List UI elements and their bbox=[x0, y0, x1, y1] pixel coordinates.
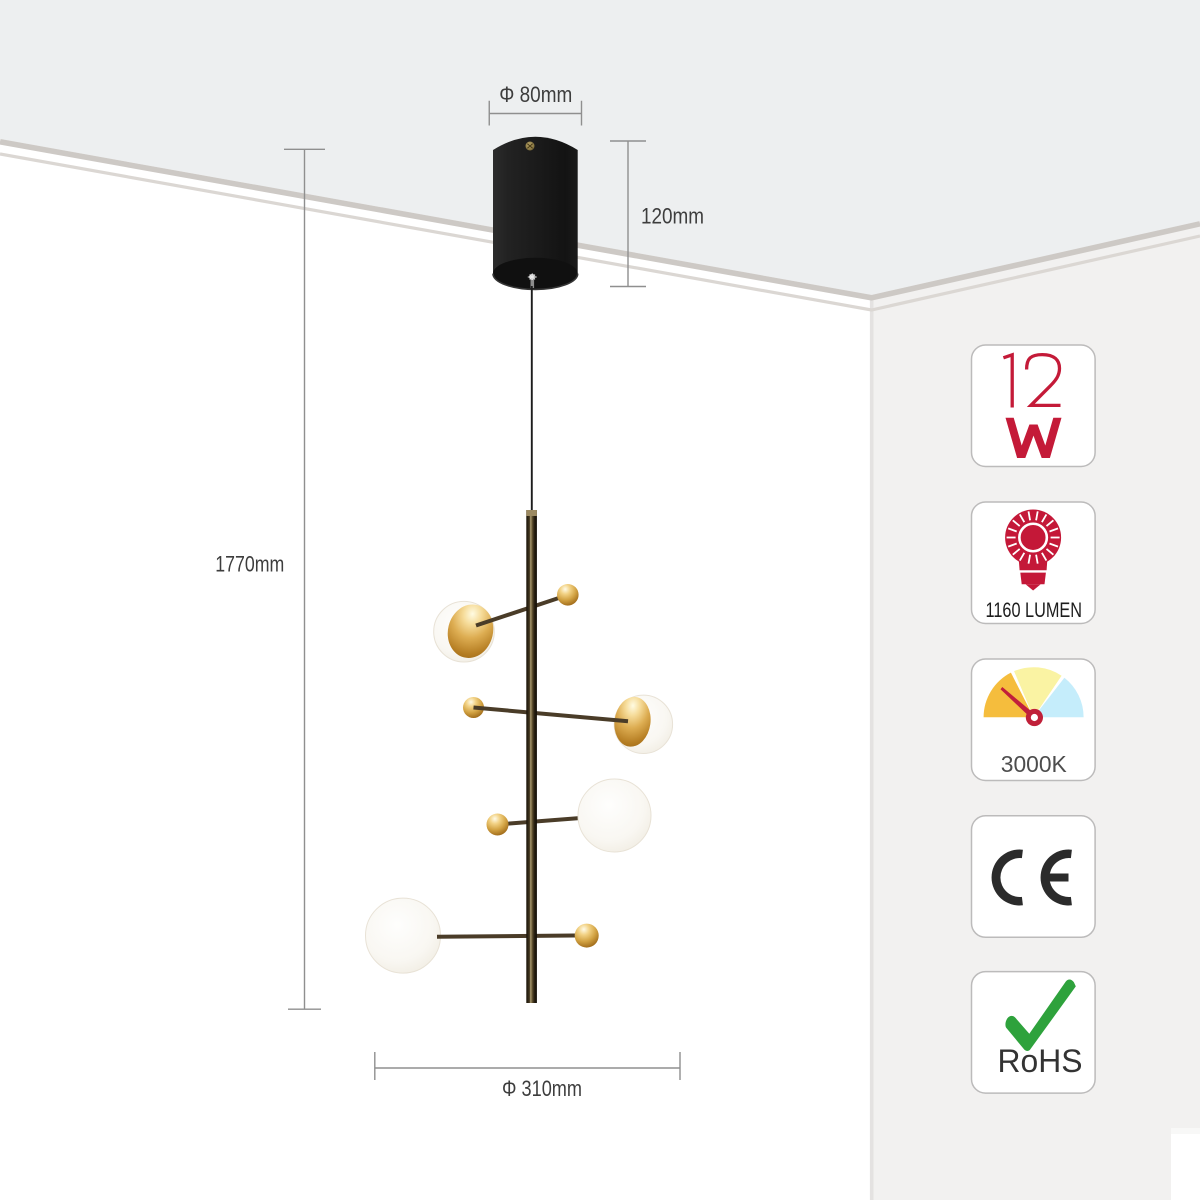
svg-text:1770mm: 1770mm bbox=[215, 552, 284, 577]
svg-text:3000K: 3000K bbox=[1001, 751, 1068, 777]
svg-text:1160 LUMEN: 1160 LUMEN bbox=[986, 599, 1083, 622]
svg-text:RoHS: RoHS bbox=[998, 1043, 1083, 1079]
svg-text:Φ 310mm: Φ 310mm bbox=[502, 1076, 582, 1101]
svg-text:Φ 80mm: Φ 80mm bbox=[499, 82, 572, 107]
svg-text:120mm: 120mm bbox=[641, 204, 704, 229]
